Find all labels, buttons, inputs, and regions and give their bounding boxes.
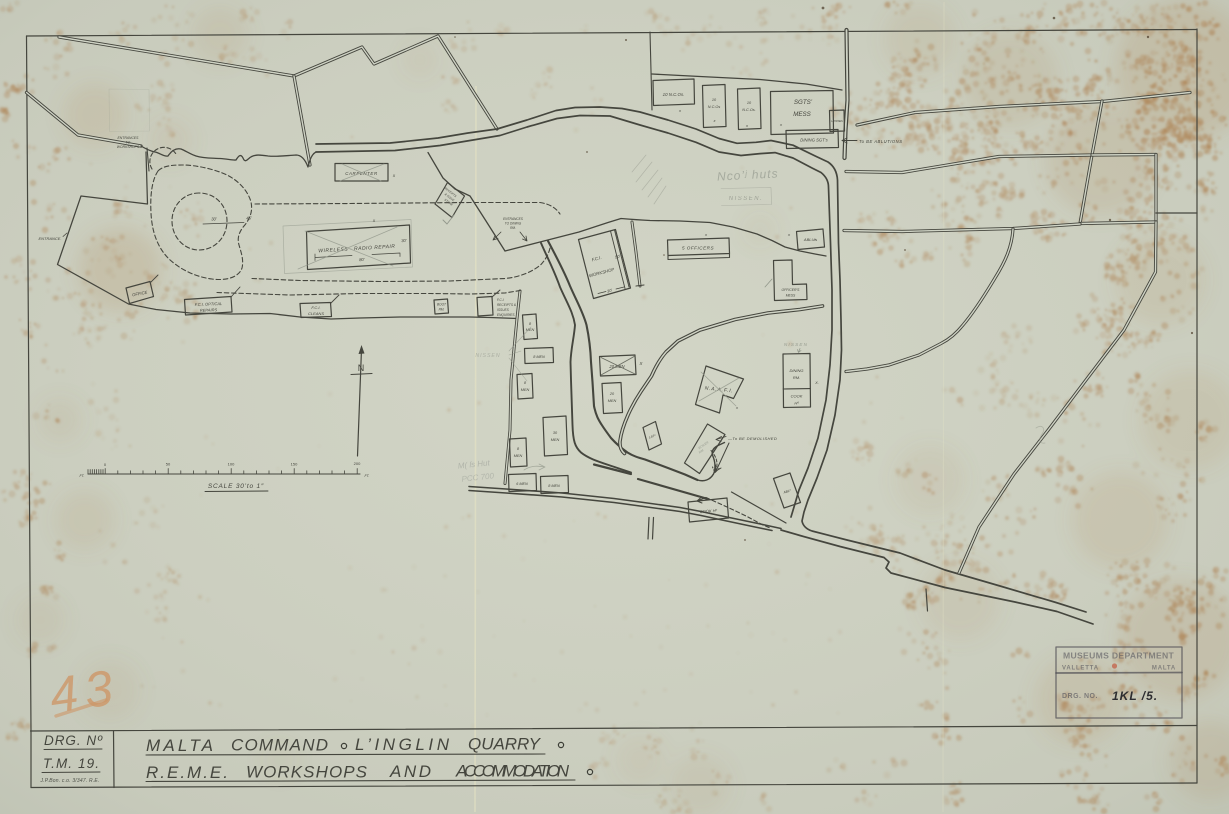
svg-text:F.C.I. OPTICAL: F.C.I. OPTICAL [195, 301, 223, 307]
svg-text:QUARRY: QUARRY [468, 735, 543, 754]
svg-text:MUSEUMS DEPARTMENT: MUSEUMS DEPARTMENT [1063, 651, 1175, 661]
svg-text:WORKSHOPS: WORKSHOPS [117, 145, 140, 149]
svg-text:DRG. Nº: DRG. Nº [44, 733, 103, 748]
svg-text:NISSEN: NISSEN [784, 342, 808, 347]
svg-text:SGTS’: SGTS’ [794, 99, 813, 106]
svg-text:TO DINING: TO DINING [505, 222, 522, 226]
svg-text:30’: 30’ [211, 217, 217, 222]
svg-text:45’: 45’ [246, 216, 252, 221]
svg-text:NISSEN.: NISSEN. [729, 196, 764, 202]
svg-text:RECEIPTS &: RECEIPTS & [497, 303, 516, 307]
svg-text:BOOT: BOOT [437, 303, 447, 307]
svg-text:—To BE DEMOLISHED: —To BE DEMOLISHED [727, 436, 777, 441]
svg-text:50: 50 [166, 462, 171, 467]
svg-text:NISSEN: NISSEN [475, 353, 500, 359]
svg-text:MEN: MEN [608, 399, 617, 403]
svg-text:MALTA: MALTA [146, 736, 216, 755]
svg-text:VALLETTA: VALLETTA [1062, 666, 1099, 672]
svg-text:COOK: COOK [791, 394, 803, 399]
svg-text:DRG. NO.: DRG. NO. [1062, 693, 1098, 700]
svg-text:6 MEN: 6 MEN [516, 482, 528, 486]
svg-text:CLEANS: CLEANS [308, 311, 324, 316]
svg-text:MEN: MEN [514, 454, 523, 458]
svg-text:5 OFFICERS: 5 OFFICERS [682, 246, 714, 251]
svg-text:ACCOMMODATION: ACCOMMODATION [455, 762, 572, 781]
svg-text:COMMAND: COMMAND [231, 736, 331, 755]
svg-text:MALTA: MALTA [1152, 666, 1176, 672]
svg-text:150: 150 [291, 462, 298, 467]
svg-text:30’: 30’ [401, 238, 407, 243]
svg-text:ENQUIRIES: ENQUIRIES [497, 313, 515, 317]
svg-text:100: 100 [228, 462, 235, 467]
svg-text:N.C.Os: N.C.Os [708, 105, 721, 109]
svg-text:L’INGLIN: L’INGLIN [355, 735, 452, 754]
svg-text:F.C.I.: F.C.I. [311, 305, 320, 310]
svg-text:20: 20 [609, 392, 615, 396]
svg-text:ABLUʦ: ABLUʦ [803, 237, 817, 242]
svg-text:8 MEN: 8 MEN [533, 355, 545, 359]
svg-text:CARPENTER: CARPENTER [345, 171, 378, 176]
svg-text:F.C.I.: F.C.I. [497, 298, 504, 302]
svg-text:ENTRANCES: ENTRANCES [503, 217, 524, 221]
svg-text:TO: TO [126, 141, 131, 145]
svg-text:ENTRANCE.: ENTRANCE. [38, 236, 61, 241]
svg-text:ENTRANCES: ENTRANCES [118, 136, 140, 140]
svg-text:MEN: MEN [551, 438, 560, 442]
svg-text:N: N [358, 363, 365, 373]
svg-text:1KL /5.: 1KL /5. [1112, 689, 1158, 703]
svg-text:80’: 80’ [359, 257, 365, 262]
svg-text:DINING: DINING [790, 368, 804, 373]
svg-text:Hº: Hº [794, 401, 799, 406]
svg-text:RM.: RM. [510, 226, 516, 230]
svg-text:FT.: FT. [79, 474, 84, 478]
svg-text:OFFICER’S: OFFICER’S [782, 288, 801, 292]
svg-text:SCALE 30’to 1″: SCALE 30’to 1″ [208, 483, 264, 490]
svg-text:N.C.Os.: N.C.Os. [742, 108, 756, 112]
svg-text:WORKSHOPS: WORKSHOPS [246, 763, 370, 782]
svg-text:8 MEN: 8 MEN [548, 484, 560, 488]
svg-text:ISSUES: ISSUES [497, 308, 510, 312]
svg-text:LATRINES: LATRINES [831, 120, 843, 123]
svg-text:FT.: FT. [364, 474, 369, 478]
svg-text:To BE ABLUTIONS: To BE ABLUTIONS [859, 139, 903, 144]
svg-text:MESS: MESS [786, 294, 796, 298]
svg-text:RM.: RM. [793, 375, 800, 380]
svg-text:RM.: RM. [439, 308, 445, 312]
svg-text:DINING SGT’s: DINING SGT’s [800, 138, 828, 143]
svg-text:REPAIRS: REPAIRS [200, 307, 218, 313]
svg-text:10 N.C.Os.: 10 N.C.Os. [663, 92, 685, 97]
svg-text:R.E.M.E.: R.E.M.E. [146, 763, 230, 782]
svg-text:200: 200 [354, 461, 361, 466]
svg-text:AND: AND [389, 762, 434, 781]
svg-text:T.M. 19.: T.M. 19. [43, 756, 99, 771]
svg-text:J.P.Bon. c.o. 3/347. R.E.: J.P.Bon. c.o. 3/347. R.E. [39, 778, 99, 784]
svg-text:MEN: MEN [521, 388, 530, 392]
svg-text:X.: X. [814, 380, 819, 385]
svg-text:MESS: MESS [793, 111, 811, 118]
